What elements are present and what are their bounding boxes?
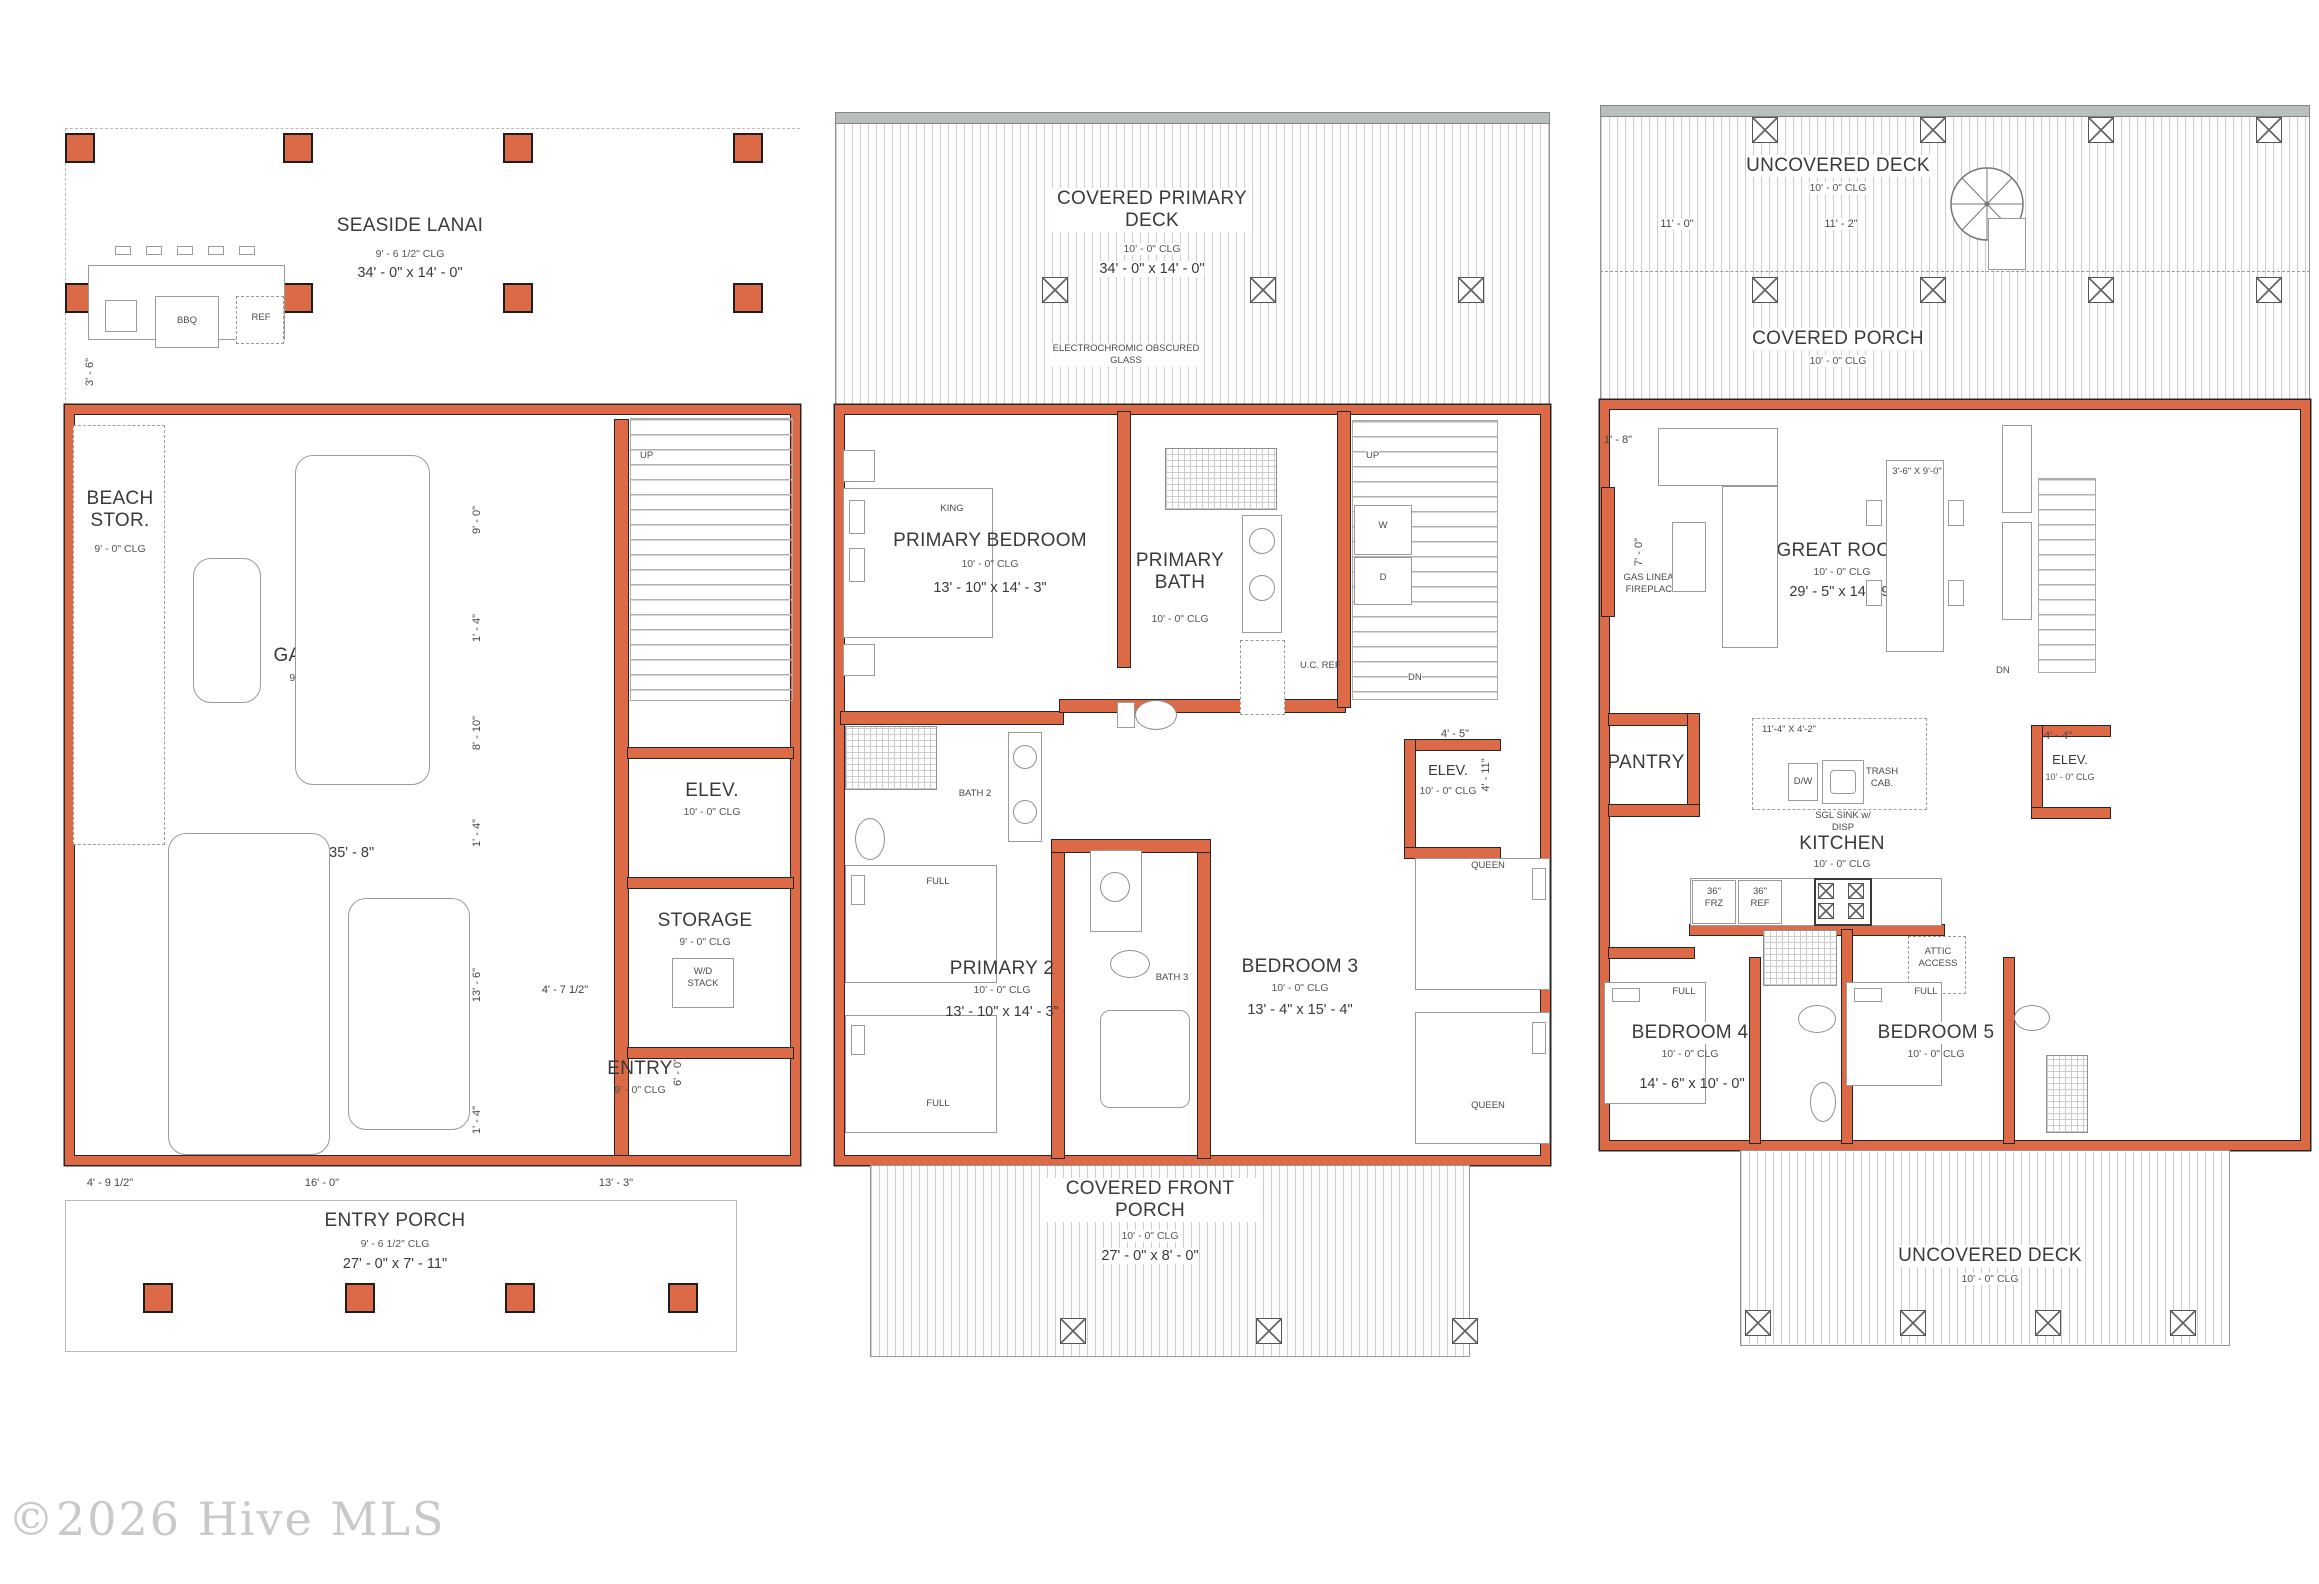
full-label: FULL [1914, 986, 1937, 997]
front-porch-ceiling: 10' - 0" CLG [1121, 1230, 1178, 1242]
deck-post [1920, 117, 1946, 143]
storage-ceiling: 9' - 0" CLG [679, 936, 730, 948]
room-label-elev2: ELEV. [1428, 763, 1468, 779]
elev-ceiling: 10' - 0" CLG [683, 806, 740, 818]
sink-label: SGL SINK w/ DISP [1807, 810, 1879, 834]
lanai-post [503, 133, 533, 163]
sectional-sofa [1658, 428, 1778, 486]
beach-stor-ceiling: 9' - 0" CLG [94, 543, 145, 555]
dim-chain: 1' - 4" [471, 1106, 483, 1134]
dim-chain: 1' - 4" [471, 819, 483, 847]
ref-label: REF [252, 312, 271, 323]
elev-wall [2032, 726, 2042, 818]
dim-entry: 6' - 0" [672, 1058, 684, 1086]
elev-wall [1405, 740, 1500, 750]
room-label-uncovered-deck2: UNCOVERED DECK [1898, 1245, 2082, 1267]
pantry-wall [1688, 714, 1699, 814]
sectional-sofa [1722, 486, 1778, 648]
room-label-primary-bedroom: PRIMARY BEDROOM [893, 530, 1087, 552]
bath3-label: BATH 3 [1156, 972, 1189, 983]
entry-porch-dims: 27' - 0" x 7' - 11" [343, 1256, 447, 1272]
dim-bottom: 16' - 0" [305, 1177, 339, 1189]
pillow [851, 1025, 865, 1055]
pillow [1854, 988, 1882, 1002]
roof-edge [835, 112, 1550, 124]
lanai-post [283, 283, 313, 313]
vanity-sink [1249, 528, 1275, 554]
deck-post [1745, 1310, 1771, 1336]
entry-porch-ceiling: 9' - 6 1/2" CLG [361, 1238, 430, 1250]
pantry-wall [1609, 805, 1699, 816]
dryer-label: D [1380, 572, 1387, 583]
queen-bed [1415, 1012, 1550, 1144]
deck-dim: 11' - 2" [1824, 218, 1857, 230]
deck-post [1458, 277, 1484, 303]
dining-chair [1866, 500, 1882, 526]
room-label-elev: ELEV. [685, 780, 739, 802]
dining-chair [1948, 580, 1964, 606]
lanai-sink [105, 300, 137, 332]
bar-stool [146, 246, 162, 255]
room-label-entry-porch: ENTRY PORCH [325, 1210, 466, 1232]
bath-column-wall [1052, 840, 1064, 1158]
bath-wall [1118, 412, 1130, 667]
dim-chain: 13' - 6" [471, 968, 483, 1002]
stairs-dn-label: DN [1996, 665, 2010, 676]
dishwasher-label: D/W [1794, 776, 1812, 787]
bath-column-wall [1198, 840, 1210, 1158]
island-sink-basin [1830, 770, 1856, 794]
fireplace-wall [1602, 488, 1614, 616]
elev2-ceiling: 10' - 0" CLG [1419, 785, 1476, 797]
burner [1848, 903, 1864, 919]
room-label-covered-front-porch: COVERED FRONT PORCH [1040, 1178, 1260, 1222]
shower [1763, 930, 1837, 986]
freezer-label: 36" FRZ [1699, 886, 1729, 910]
dim-corner: 1' - 8" [1604, 434, 1632, 446]
elev-wall [628, 878, 793, 888]
deck-post [2256, 277, 2282, 303]
vanity-sink [1810, 1082, 1836, 1122]
elev-dim: 4' - 4" [2044, 730, 2072, 742]
stairs-plan3 [2038, 478, 2096, 673]
uncovered-deck2-ceiling: 10' - 0" CLG [1961, 1273, 2018, 1285]
deck-dim: 11' - 0" [1660, 218, 1693, 230]
pillow [849, 500, 865, 534]
storage-wall [628, 1048, 793, 1058]
bedroom3-dims: 13' - 4" x 15' - 4" [1247, 1002, 1352, 1018]
mls-watermark: ©2026 Hive MLS [8, 1492, 446, 1546]
room-label-uncovered-deck: UNCOVERED DECK [1746, 155, 1930, 177]
vanity-sink [1013, 745, 1037, 769]
island-dims: 11'-4" X 4'-2" [1762, 724, 1816, 735]
room-label-elev3: ELEV. [2052, 752, 2088, 767]
room-label-primary-bath: PRIMARY BATH [1125, 550, 1235, 594]
primary-bath-ceiling: 10' - 0" CLG [1151, 613, 1208, 625]
queen-bed [1415, 858, 1550, 990]
bar-stool [239, 246, 255, 255]
deck-post [1920, 277, 1946, 303]
vanity-sink [1100, 872, 1130, 902]
lanai-post [283, 133, 313, 163]
toilet [1135, 700, 1177, 730]
plan1-interior-wall [615, 420, 628, 1155]
front-porch-dims: 27' - 0" x 8' - 0" [1101, 1248, 1198, 1264]
dining-chair [1866, 580, 1882, 606]
uc-ref-cabinet [1240, 640, 1285, 715]
roof-edge [1600, 105, 2310, 117]
uc-ref-label: U.C. REF [1300, 660, 1341, 671]
stairs-plan1 [630, 418, 793, 701]
queen-label: QUEEN [1471, 860, 1505, 871]
porch-post [668, 1283, 698, 1313]
nightstand [843, 644, 875, 676]
car-sedan [348, 898, 470, 1130]
burner [1818, 883, 1834, 899]
room-label-bedroom3: BEDROOM 3 [1242, 956, 1359, 978]
uncovered-deck-ceiling: 10' - 0" CLG [1809, 182, 1866, 194]
full-label: FULL [1672, 986, 1695, 997]
porch-post [1060, 1318, 1086, 1344]
covered-porch-ceiling: 10' - 0" CLG [1809, 355, 1866, 367]
elev-wall [1405, 848, 1500, 858]
bedroom5-ceiling: 10' - 0" CLG [1907, 1048, 1964, 1060]
lanai-post [733, 133, 763, 163]
shower [2046, 1055, 2088, 1133]
deck-post [1900, 1310, 1926, 1336]
lanai-post [733, 283, 763, 313]
primary-deck-dims: 34' - 0" x 14' - 0" [1099, 261, 1204, 277]
dim-chain: 9' - 0" [471, 506, 483, 534]
golf-cart [193, 558, 261, 703]
dim-lanai-depth: 3' - 6" [84, 358, 96, 386]
bedroom-divider-wall [841, 712, 1063, 724]
toilet-tank [1117, 702, 1135, 728]
deck-post [2088, 117, 2114, 143]
seaside-lanai-ceiling: 9' - 6 1/2" CLG [376, 248, 445, 260]
stairs-dn-label: DN [1408, 672, 1422, 683]
dining-table-dims: 3'-6" X 9'-0" [1892, 466, 1941, 477]
queen-label: QUEEN [1471, 1100, 1505, 1111]
deck-post [2088, 277, 2114, 303]
pillow [851, 875, 865, 905]
room-label-seaside-lanai: SEASIDE LANAI [337, 215, 483, 237]
dim-bottom: 13' - 3" [599, 1177, 633, 1189]
porch-post [143, 1283, 173, 1313]
elev-wall [628, 748, 793, 758]
stairs-up-label: UP [1366, 450, 1379, 461]
bbq-label: BBQ [177, 315, 197, 326]
bedroom4-ceiling: 10' - 0" CLG [1661, 1048, 1718, 1060]
primary-bedroom-ceiling: 10' - 0" CLG [961, 558, 1018, 570]
bathtub [1100, 1010, 1190, 1108]
burner [1818, 903, 1834, 919]
bar-stool [177, 246, 193, 255]
bath2-shower [845, 726, 937, 790]
dim-bottom: 4' - 9 1/2" [87, 1177, 133, 1189]
toilet [2014, 1005, 2050, 1031]
pillow [1612, 988, 1640, 1002]
toilet [855, 818, 885, 860]
dim-chain: 1' - 4" [471, 614, 483, 642]
kitchen-ceiling: 10' - 0" CLG [1813, 858, 1870, 870]
primary-bedroom-dims: 13' - 10" x 14' - 3" [933, 580, 1046, 596]
bedroom-wall [1609, 948, 1694, 958]
deck-post [1250, 277, 1276, 303]
dim-fireplace: 7' - 0" [1633, 538, 1645, 566]
room-label-covered-porch: COVERED PORCH [1752, 328, 1924, 350]
dim-storage: 4' - 7 1/2" [542, 984, 588, 996]
vanity-sink [1249, 575, 1275, 601]
hall-wall [1060, 700, 1345, 712]
buffet-cabinet [2002, 522, 2032, 620]
stairs-up-label: UP [640, 450, 653, 461]
elev-wall [2032, 808, 2110, 818]
pillow [1532, 1022, 1546, 1054]
full-label: FULL [926, 876, 949, 887]
bedroom-wall [2004, 958, 2014, 1143]
buffet-cabinet [2002, 425, 2032, 513]
full-label: FULL [926, 1098, 949, 1109]
burner [1848, 883, 1864, 899]
room-label-entry: ENTRY [607, 1058, 673, 1080]
deck-post [1752, 277, 1778, 303]
room-label-bedroom4: BEDROOM 4 [1632, 1022, 1749, 1044]
bath2-label: BATH 2 [959, 788, 992, 799]
room-label-covered-primary-deck: COVERED PRIMARY DECK [1052, 188, 1252, 232]
toilet [1798, 1005, 1836, 1033]
bedroom4-dims: 14' - 6" x 10' - 0" [1639, 1076, 1744, 1092]
deck-post [1752, 117, 1778, 143]
lanai-post [65, 133, 95, 163]
room-label-primary2: PRIMARY 2 [950, 958, 1054, 980]
primary2-dims: 13' - 10" x 14' - 3" [945, 1004, 1058, 1020]
attic-access-label: ATTIC ACCESS [1914, 946, 1962, 970]
room-label-kitchen: KITCHEN [1799, 833, 1885, 855]
deck-post [2256, 117, 2282, 143]
seaside-lanai-dims: 34' - 0" x 14' - 0" [357, 265, 462, 281]
uncovered-deck-top [1600, 105, 2310, 400]
dining-table [1886, 460, 1944, 652]
electrochromic-glass-note: ELECTROCHROMIC OBSCURED GLASS [1051, 343, 1201, 367]
spiral-stair-landing [1988, 218, 2026, 270]
deck-post [2035, 1310, 2061, 1336]
king-label: KING [940, 503, 963, 514]
room-label-beach-stor: BEACH STOR. [78, 488, 162, 532]
porch-post [505, 1283, 535, 1313]
elev-dim: 4' - 11" [1480, 758, 1492, 791]
pantry-wall [1609, 714, 1697, 725]
vanity-sink [1013, 800, 1037, 824]
wd-stack-label: W/D STACK [680, 966, 726, 990]
bar-stool [115, 246, 131, 255]
bedroom-wall [1750, 958, 1760, 1143]
trash-label: TRASH CAB. [1858, 766, 1906, 790]
primary-shower [1165, 448, 1277, 510]
room-label-storage: STORAGE [658, 910, 753, 932]
room-label-pantry: PANTRY [1607, 752, 1684, 774]
bar-stool [208, 246, 224, 255]
nightstand [843, 450, 875, 482]
great-room-ceiling: 10' - 0" CLG [1813, 566, 1870, 578]
coffee-table [1672, 522, 1706, 592]
car-suv-top [295, 455, 430, 785]
refrigerator-label: 36" REF [1745, 886, 1775, 910]
car-suv-bottom [168, 833, 330, 1155]
elev3-ceiling: 10' - 0" CLG [2046, 772, 2095, 782]
primary2-ceiling: 10' - 0" CLG [973, 984, 1030, 996]
pillow [1532, 868, 1546, 900]
entry-ceiling: 9' - 0" CLG [614, 1084, 665, 1096]
elev-wall [1405, 740, 1415, 858]
primary-deck-ceiling: 10' - 0" CLG [1123, 243, 1180, 255]
bedroom3-ceiling: 10' - 0" CLG [1271, 982, 1328, 994]
lanai-post [503, 283, 533, 313]
washer-label: W [1379, 520, 1388, 531]
dining-chair [1948, 500, 1964, 526]
deck-post [2170, 1310, 2196, 1336]
deck-post [1042, 277, 1068, 303]
porch-post [1256, 1318, 1282, 1344]
full-bed [845, 1015, 997, 1133]
elev-dim: 4' - 5" [1441, 728, 1469, 740]
pillow [849, 548, 865, 582]
deck-porch-divider [1600, 271, 2310, 272]
porch-post [1452, 1318, 1478, 1344]
dim-chain: 8' - 10" [471, 716, 483, 750]
room-label-bedroom5: BEDROOM 5 [1878, 1022, 1995, 1044]
porch-post [345, 1283, 375, 1313]
toilet [1110, 950, 1150, 978]
